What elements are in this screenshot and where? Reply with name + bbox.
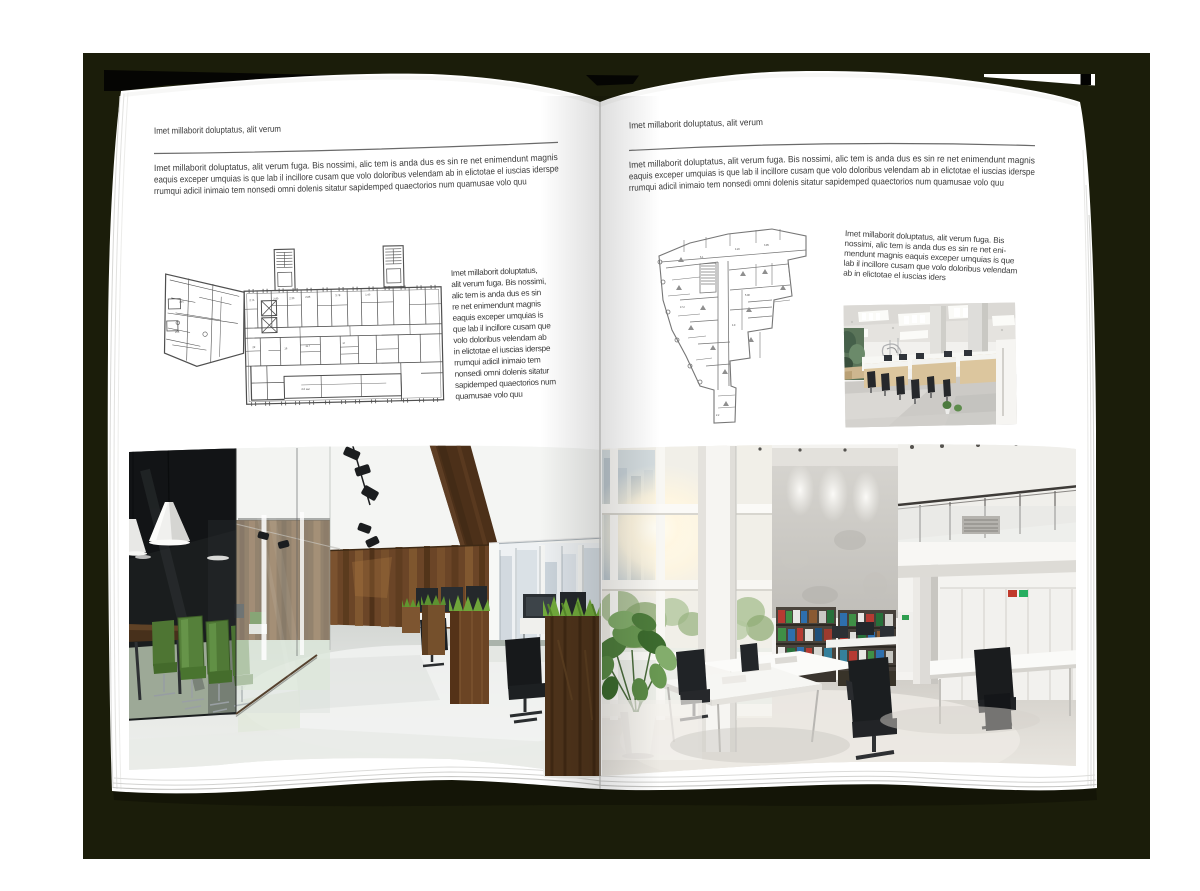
svg-text:17.2: 17.2 bbox=[680, 306, 685, 309]
svg-text:3.78: 3.78 bbox=[335, 293, 341, 297]
svg-text:3.95: 3.95 bbox=[764, 244, 769, 247]
svg-text:11.7: 11.7 bbox=[305, 344, 311, 348]
svg-text:4.20: 4.20 bbox=[735, 248, 740, 251]
svg-text:2-й зал: 2-й зал bbox=[301, 387, 310, 391]
svg-text:205: 205 bbox=[179, 300, 184, 304]
svg-text:2.75: 2.75 bbox=[249, 298, 255, 302]
svg-text:266: 266 bbox=[175, 330, 180, 334]
svg-text:5.08: 5.08 bbox=[745, 294, 750, 297]
svg-text:1.45: 1.45 bbox=[365, 292, 371, 296]
svg-text:2.30: 2.30 bbox=[289, 296, 295, 300]
svg-text:2.86: 2.86 bbox=[305, 295, 311, 299]
svg-text:2.80: 2.80 bbox=[273, 296, 279, 300]
